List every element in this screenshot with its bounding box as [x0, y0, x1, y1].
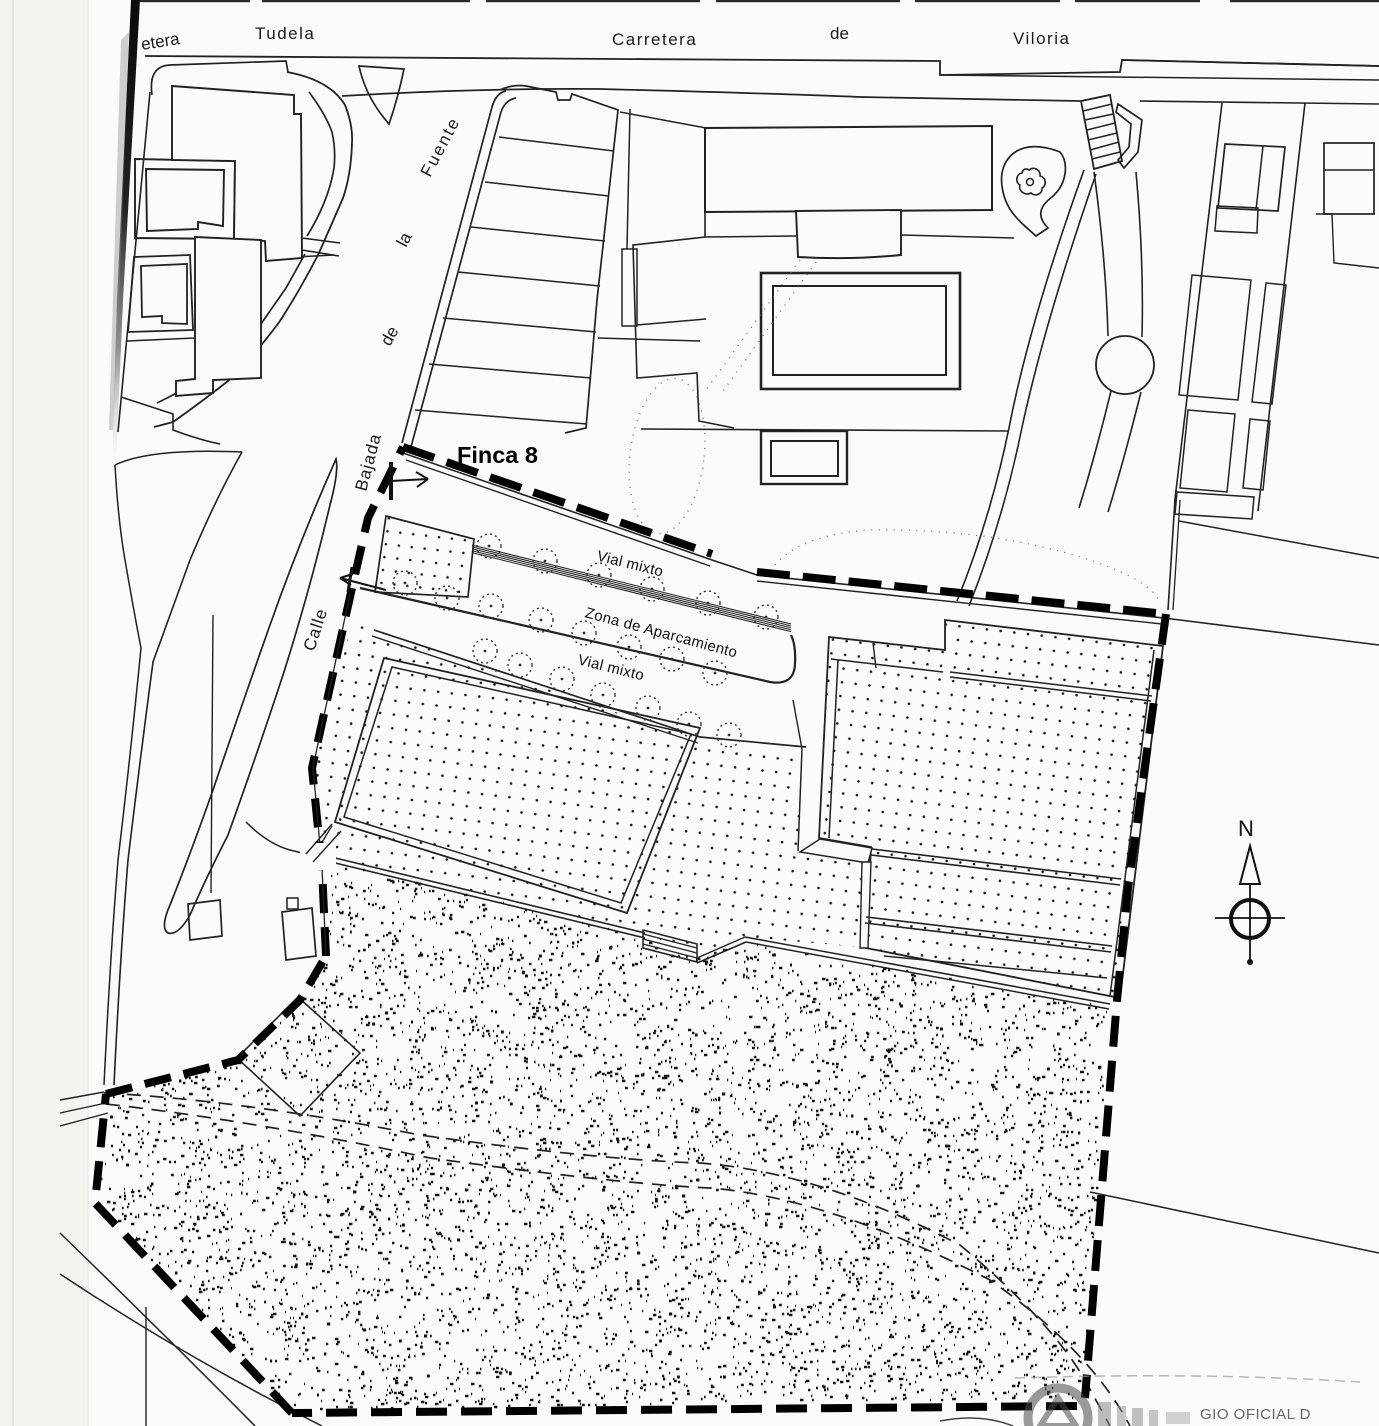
svg-text:Tudela: Tudela: [255, 24, 315, 43]
svg-text:Carretera: Carretera: [612, 30, 697, 49]
svg-text:GIO OFICIAL D: GIO OFICIAL D: [1200, 1406, 1311, 1423]
svg-text:Viloria: Viloria: [1013, 29, 1070, 48]
svg-text:de: de: [830, 24, 849, 43]
svg-text:N: N: [1238, 816, 1254, 841]
svg-text:Finca 8: Finca 8: [457, 442, 538, 468]
